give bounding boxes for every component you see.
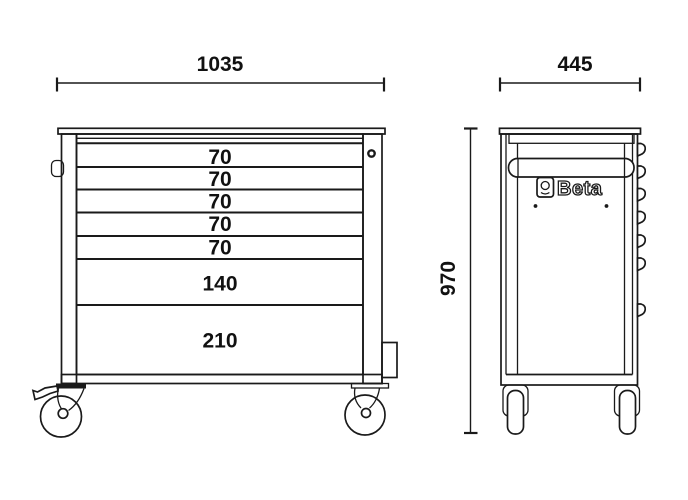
dimension-value: 970	[437, 261, 460, 296]
dimension-side-width: 445	[500, 53, 640, 92]
drawer-pull-icon	[638, 304, 646, 316]
drawing-svg: 70 70 70 70 70 140 210	[0, 0, 688, 500]
front-top-slab	[58, 128, 385, 134]
side-view: Beta	[500, 128, 646, 434]
caster-front-right	[345, 384, 389, 436]
drawer-pull-icon	[638, 166, 646, 179]
front-base-band	[62, 375, 383, 384]
side-top-step	[509, 134, 634, 143]
drawer-pull-icon	[638, 189, 646, 202]
dimension-front-width: 1035	[57, 53, 384, 92]
drawer-height-label: 70	[208, 237, 231, 260]
caster-plate	[56, 384, 86, 389]
push-handle	[509, 159, 635, 178]
caster-wheel	[508, 391, 524, 435]
technical-drawing-cabinet: 70 70 70 70 70 140 210	[0, 0, 688, 500]
drawer-height-label: 140	[202, 273, 237, 296]
drawer-height-label: 70	[208, 191, 231, 214]
dimension-value: 445	[557, 53, 592, 76]
drawer-pull-icon	[638, 212, 646, 225]
drawer-height-label: 210	[202, 330, 237, 353]
side-box	[382, 343, 397, 378]
caster-front-left-brake	[33, 384, 86, 438]
rivet-dot	[534, 204, 538, 208]
brand-name: Beta	[557, 178, 603, 200]
caster-hub	[58, 409, 68, 419]
side-drawer-pulls	[638, 144, 646, 317]
caster-hub	[362, 409, 371, 418]
drawer-height-label: 70	[208, 168, 231, 191]
side-top-slab	[500, 128, 641, 134]
caster-side-right	[615, 385, 640, 434]
brand-logo: Beta	[534, 178, 609, 208]
caster-side-left	[503, 385, 528, 434]
front-view: 70 70 70 70 70 140 210	[33, 128, 397, 437]
lock-icon	[368, 150, 374, 156]
drawer-pull-icon	[638, 144, 646, 157]
rivet-dot	[605, 204, 609, 208]
drawer-height-label: 70	[208, 146, 231, 169]
drawer-height-label: 70	[208, 213, 231, 236]
drawer-pull-icon	[638, 235, 646, 248]
drawer-pull-icon	[638, 258, 646, 270]
front-right-frame	[363, 134, 382, 384]
caster-wheel	[620, 391, 636, 435]
dimension-height: 970	[437, 129, 478, 434]
dimension-value: 1035	[197, 53, 244, 76]
handle-bar	[509, 159, 635, 178]
